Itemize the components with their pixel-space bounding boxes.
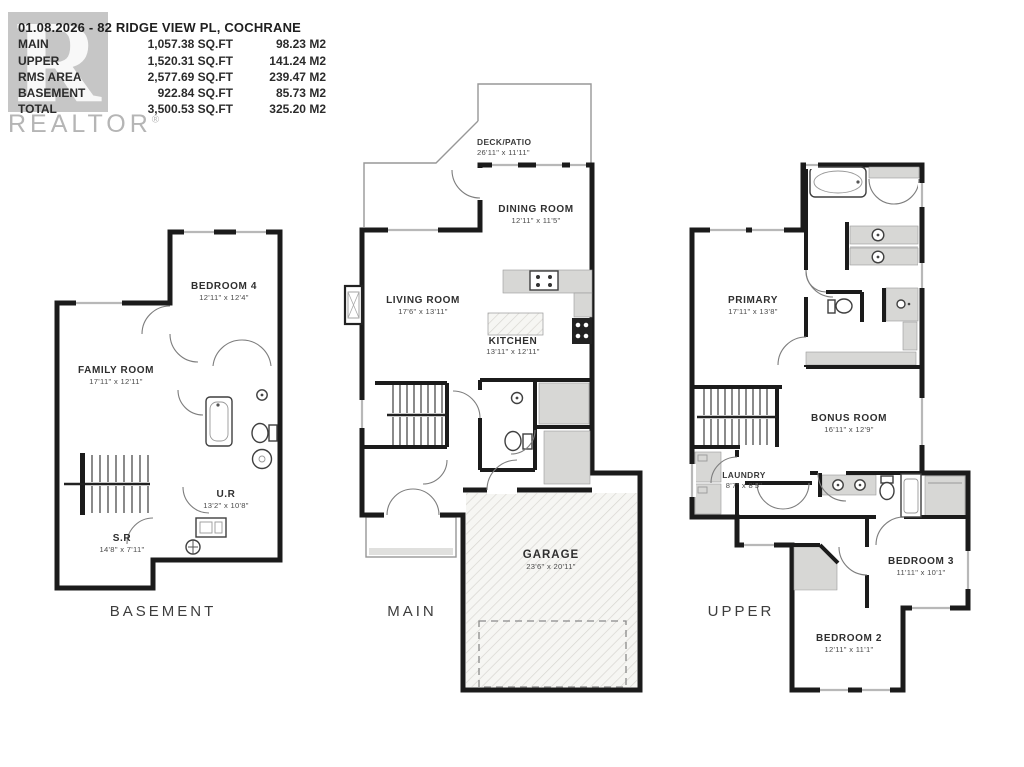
room-label: FAMILY ROOM <box>78 365 154 376</box>
cooktop-symbol <box>530 271 558 290</box>
walkin-closet-shelf <box>806 352 916 365</box>
room-label: BEDROOM 3 <box>888 556 954 567</box>
room-label: KITCHEN <box>489 336 538 347</box>
upper-floorplan: PRIMARY 17'11" x 13'8" BONUS ROOM 16'11"… <box>688 161 972 694</box>
basement-bathtub-symbol <box>206 397 232 446</box>
floorplan-page: R 01.08.2026 - 82 RIDGE VIEW PL, COCHRAN… <box>0 0 1024 767</box>
oven-symbol <box>572 318 592 344</box>
bath-sink-2 <box>855 480 865 490</box>
garage-floor <box>466 493 637 687</box>
bath-tub-symbol <box>901 474 921 517</box>
floor-drain-symbol <box>186 540 200 554</box>
room-dims: 14'8" x 7'11" <box>100 545 145 554</box>
room-dims: 17'6" x 13'11" <box>398 307 448 316</box>
room-dims: 17'11" x 13'8" <box>728 307 778 316</box>
ensuite-sink-1 <box>872 229 884 241</box>
dryer-symbol <box>695 484 721 514</box>
floor-label-basement: BASEMENT <box>110 603 217 620</box>
room-label: BONUS ROOM <box>811 413 887 424</box>
room-dims: 16'11" x 12'9" <box>824 425 874 434</box>
room-dims: 13'11" x 12'11" <box>486 347 539 356</box>
water-heater-symbol <box>253 450 272 469</box>
room-label: S.R <box>113 533 132 544</box>
room-dims: 26'11" x 11'11" <box>477 148 530 157</box>
basement-floorplan: FAMILY ROOM 17'11" x 12'11" BEDROOM 4 12… <box>57 228 280 620</box>
kitchen-island <box>488 313 543 335</box>
kitchen-fridge <box>574 293 592 317</box>
floorplan-drawing: FAMILY ROOM 17'11" x 12'11" BEDROOM 4 12… <box>0 0 1024 767</box>
floor-label-upper: UPPER <box>708 603 775 620</box>
bath-toilet-symbol <box>880 476 894 500</box>
wc-toilet-symbol <box>828 299 852 313</box>
room-label: LAUNDRY <box>722 470 765 480</box>
room-dims: 8'7" x 8'5" <box>726 481 763 490</box>
room-dims: 12'11" x 11'1" <box>825 645 874 654</box>
powder-sink-symbol <box>512 393 523 404</box>
ensuite-sink-2 <box>872 251 884 263</box>
ensuite-closet-shelf <box>869 167 919 178</box>
basement-sink-symbol <box>257 390 267 400</box>
bath-vanity <box>822 475 876 495</box>
deck-outline-lower <box>364 121 478 227</box>
room-label: GARAGE <box>523 549 579 561</box>
room-label: BEDROOM 2 <box>816 633 882 644</box>
room-dims: 17'11" x 12'11" <box>89 377 142 386</box>
room-dims: 13'2" x 10'8" <box>203 501 249 510</box>
room-label: DECK/PATIO <box>477 137 531 147</box>
room-label: LIVING ROOM <box>386 295 460 306</box>
room-dims: 12'11" x 11'5" <box>512 216 561 225</box>
fireplace-symbol <box>345 286 362 324</box>
room-label: DINING ROOM <box>498 204 574 215</box>
mudroom-closet <box>539 383 589 424</box>
ensuite-bathtub-symbol <box>810 167 866 197</box>
pantry-closet <box>544 431 590 484</box>
room-label: U.R <box>216 489 235 500</box>
porch-step <box>369 548 453 555</box>
furnace-symbol <box>196 518 226 537</box>
room-dims: 23'6" x 20'11" <box>526 562 576 571</box>
room-dims: 11'11" x 10'1" <box>897 568 946 577</box>
basement-toilet-symbol <box>252 424 277 443</box>
bedroom3-closet <box>925 476 965 516</box>
floor-label-main: MAIN <box>387 603 437 620</box>
main-floorplan: DECK/PATIO 26'11" x 11'11" DINING ROOM 1… <box>345 84 640 690</box>
walkin-closet-side <box>903 322 917 350</box>
room-label: BEDROOM 4 <box>191 281 257 292</box>
room-label: PRIMARY <box>728 295 778 306</box>
bath-sink-1 <box>833 480 843 490</box>
room-dims: 12'11" x 12'4" <box>199 293 249 302</box>
